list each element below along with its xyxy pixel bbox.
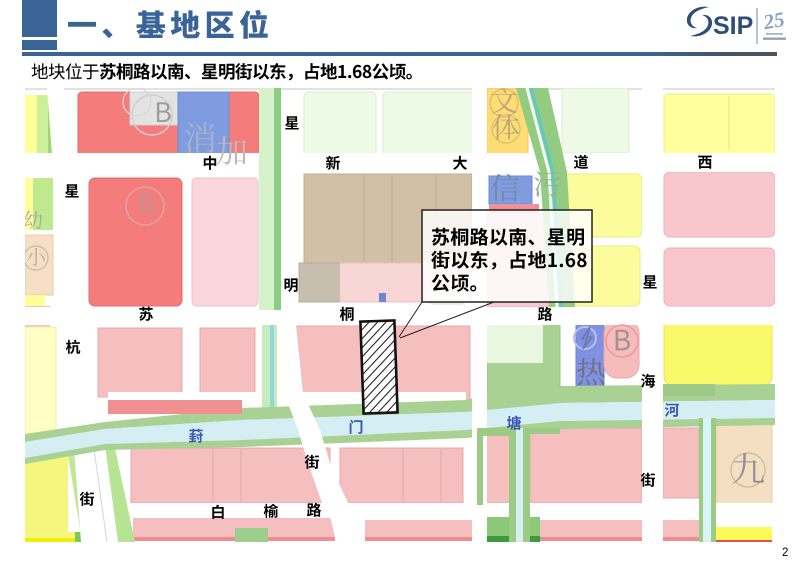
svg-text:25: 25 (761, 7, 787, 34)
svg-text:SIP: SIP (713, 12, 753, 40)
